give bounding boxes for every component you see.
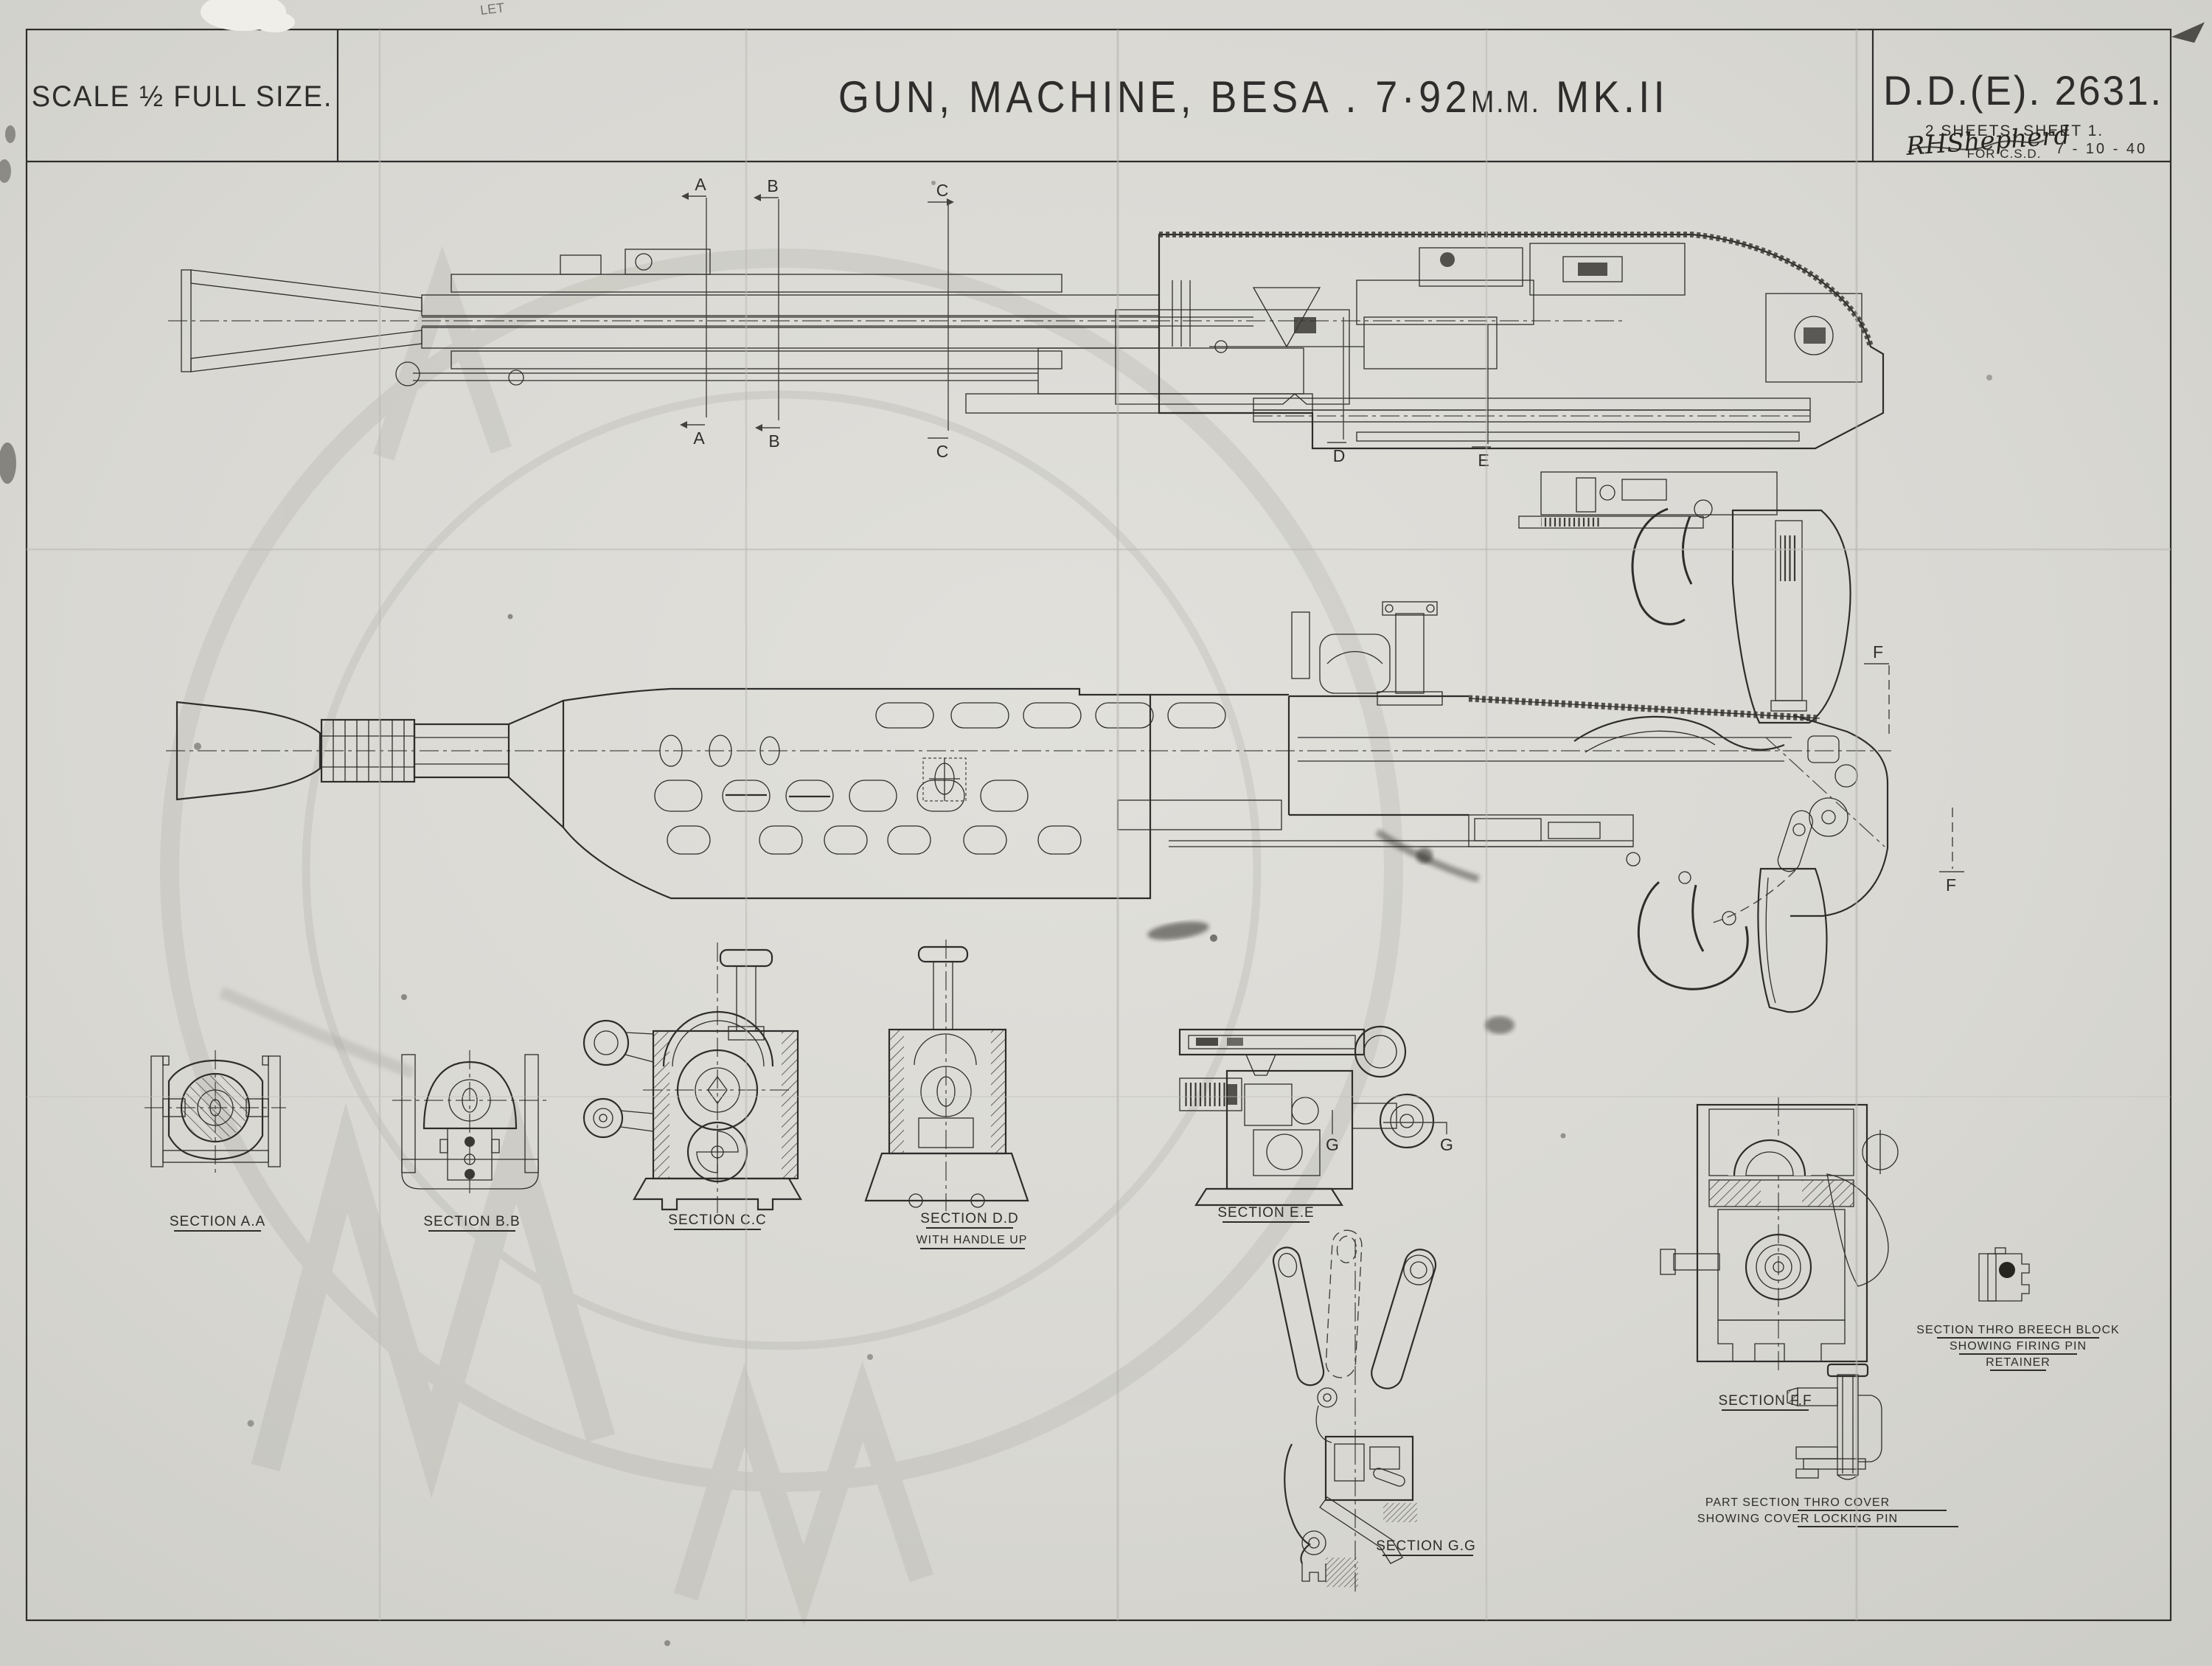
cover-pin-caption-line2: SHOWING COVER LOCKING PIN (1697, 1513, 1898, 1525)
section-dd-sublabel: WITH HANDLE UP (917, 1234, 1028, 1246)
marker-f-top: F (1873, 642, 1883, 662)
marker-e-bottom: E (1478, 451, 1489, 470)
pencil-note: LET (479, 0, 505, 18)
sheet-title: GUN, MACHINE, BESA . 7·92M.M. MK.II (838, 72, 1669, 122)
section-dd-label: SECTION D.D (920, 1211, 1018, 1226)
marker-a-bottom: A (693, 428, 705, 448)
section-ee-label: SECTION E.E (1217, 1205, 1314, 1221)
approval-for-line: FOR C.S.D. (1967, 147, 2042, 161)
marker-f-bottom: F (1946, 875, 1956, 895)
marker-b-bottom: B (768, 431, 779, 451)
drawing-number: D.D.(E). 2631. (1883, 68, 2163, 114)
paper-background (0, 0, 2212, 1666)
marker-b-top: B (767, 176, 778, 195)
marker-a-top: A (695, 175, 706, 194)
breech-block-caption-line2: SHOWING FIRING PIN (1950, 1340, 2087, 1353)
drawing-canvas: SCALE ½ FULL SIZE. GUN, MACHINE, BESA . … (0, 0, 2212, 1666)
marker-c-bottom: C (936, 442, 949, 461)
approval-date: 7 - 10 - 40 (2056, 141, 2147, 157)
blueprint-sheet: SCALE ½ FULL SIZE. GUN, MACHINE, BESA . … (0, 0, 2212, 1666)
marker-d-bottom: D (1333, 446, 1346, 465)
section-gg-label: SECTION G.G (1376, 1538, 1476, 1554)
breech-block-caption-line3: RETAINER (1986, 1356, 2051, 1369)
section-aa-label: SECTION A.A (170, 1214, 265, 1229)
cover-pin-caption-line1: PART SECTION THRO COVER (1705, 1496, 1890, 1509)
section-cc-label: SECTION C.C (668, 1212, 766, 1228)
marker-c-top: C (936, 181, 949, 200)
breech-block-caption-line1: SECTION THRO BREECH BLOCK (1916, 1324, 2119, 1336)
scale-label: SCALE ½ FULL SIZE. (32, 80, 333, 113)
marker-g-right: G (1440, 1135, 1453, 1154)
section-bb-label: SECTION B.B (423, 1214, 520, 1229)
marker-g-left: G (1326, 1135, 1339, 1154)
